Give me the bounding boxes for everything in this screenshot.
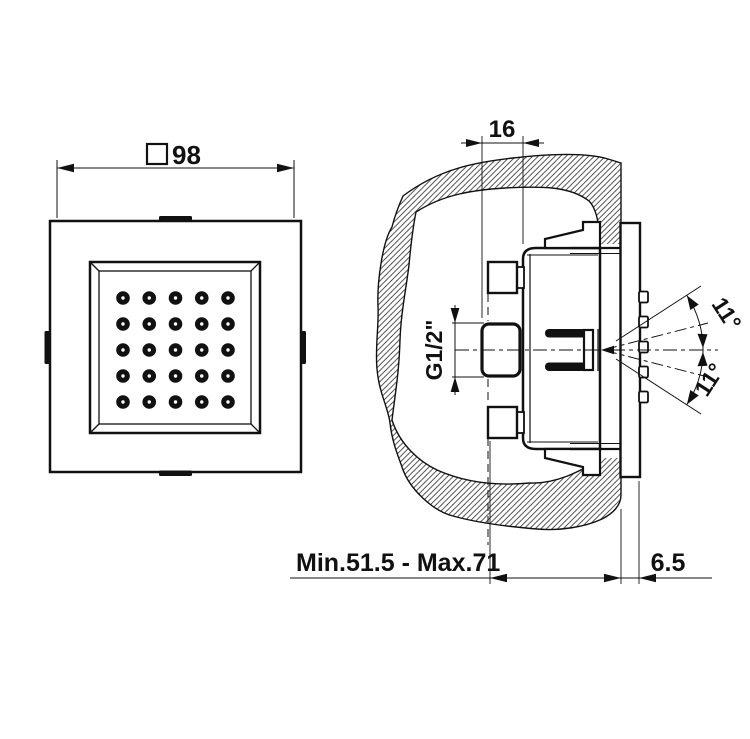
thread-label: G1/2" <box>421 320 447 381</box>
arrowhead-right <box>604 574 621 582</box>
nozzle-hole <box>200 374 203 377</box>
nozzle-hole <box>226 322 229 325</box>
adjustment-rib <box>639 367 648 378</box>
square-symbol <box>147 144 167 164</box>
nozzle-hole <box>226 348 229 351</box>
nozzle-hole <box>148 400 151 403</box>
nozzle-hole <box>174 296 177 299</box>
bevel-corner <box>90 262 99 271</box>
nozzle-hole <box>148 348 151 351</box>
nozzle-hole <box>200 348 203 351</box>
bevel-corner <box>251 424 260 433</box>
arrowhead-right <box>277 164 294 173</box>
adjustment-rib <box>639 317 648 328</box>
adjustment-rib <box>639 292 648 303</box>
tab-right <box>301 331 307 364</box>
nozzle-hole <box>226 374 229 377</box>
bevel-corner <box>251 262 260 271</box>
front-view: 98 <box>45 140 307 476</box>
nozzle-hole <box>121 374 124 377</box>
side-section-view: 11° 11° 16 G1/2" <box>290 116 747 584</box>
technical-drawing-page: 98 <box>0 0 750 739</box>
tab-top <box>159 216 192 222</box>
nozzle-hole <box>226 296 229 299</box>
tab-left <box>45 331 51 364</box>
nozzle-hole <box>121 400 124 403</box>
nozzle-hole <box>226 400 229 403</box>
embed-depth-label: 16 <box>489 116 516 143</box>
arrowhead-left <box>466 139 482 147</box>
nozzle-hole <box>174 322 177 325</box>
nozzle-grid <box>116 291 235 409</box>
adjustment-rib <box>639 342 648 353</box>
arc-arrowhead <box>698 334 708 348</box>
fork-bar-bottom <box>545 363 586 372</box>
nozzle-hole <box>121 296 124 299</box>
nozzle-hole <box>200 400 203 403</box>
adjustment-rib <box>639 392 648 403</box>
nozzle-hole <box>148 374 151 377</box>
nozzle-hole <box>200 296 203 299</box>
nozzle-hole <box>174 374 177 377</box>
nozzle-hole <box>121 348 124 351</box>
pipe-boss-top <box>488 262 517 293</box>
nozzle-hole <box>148 296 151 299</box>
nozzle-hole <box>200 322 203 325</box>
tab-bottom <box>159 471 192 477</box>
plate-offset-label: 6.5 <box>651 549 686 577</box>
arc-arrowhead <box>687 296 699 311</box>
nozzle-hole <box>148 322 151 325</box>
arrowhead-left <box>57 164 74 173</box>
nozzle-hole <box>174 348 177 351</box>
shower-jet-installation-drawing: 98 <box>0 0 750 739</box>
nozzle-hole <box>174 400 177 403</box>
arrowhead-right <box>523 139 539 147</box>
nozzle-hole <box>121 322 124 325</box>
front-width-label: 98 <box>172 140 201 170</box>
depth-range-label: Min.51.5 - Max.71 <box>296 549 500 577</box>
bevel-corner <box>90 424 99 433</box>
pipe-boss-bottom <box>488 407 517 438</box>
front-width-dimension: 98 <box>57 140 294 218</box>
angle-label-upper: 11° <box>707 293 747 335</box>
fork-bar-top <box>545 329 586 338</box>
